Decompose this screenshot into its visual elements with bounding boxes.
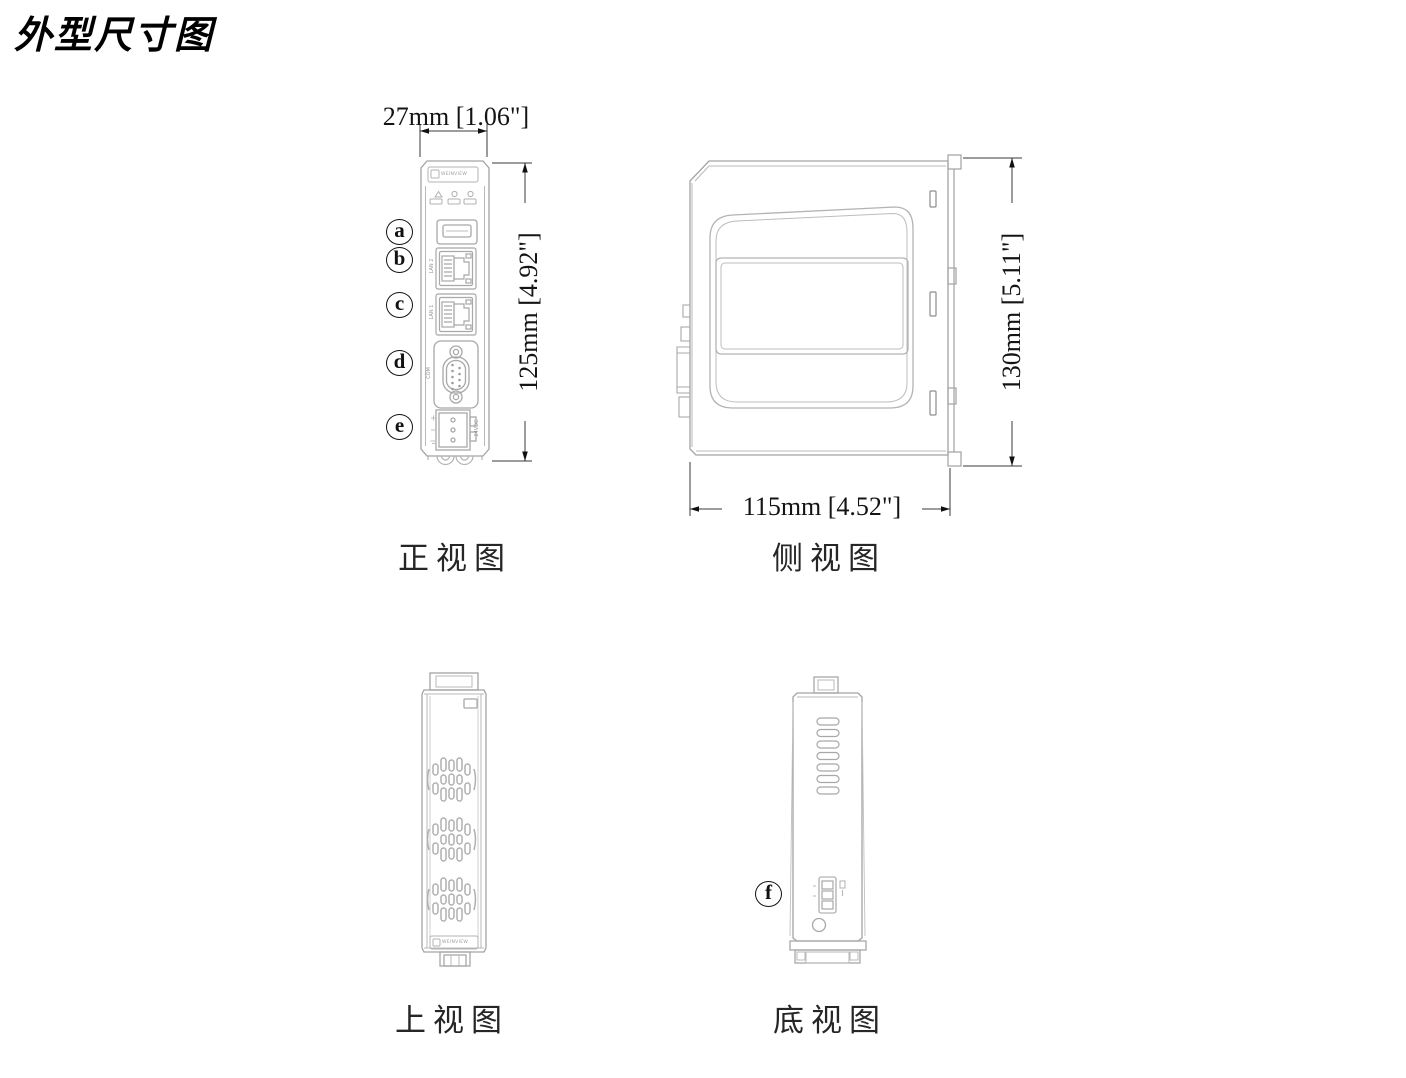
side-width-dimension: 115mm [4.52"] xyxy=(722,492,922,522)
lan1-port-icon xyxy=(436,294,476,335)
front-view-caption: 正视图 xyxy=(355,533,555,578)
bottom-top-tab xyxy=(814,677,838,693)
bottom-view-caption: 底视图 xyxy=(730,995,930,1040)
callout-c-lan1: c xyxy=(386,292,413,318)
bottom-vent-slots xyxy=(817,718,839,794)
side-view-drawing xyxy=(677,155,961,466)
callout-a-usb: a xyxy=(386,219,413,245)
front-height-dimension: 125mm [4.92"] xyxy=(513,192,545,432)
dip-switch-icon xyxy=(813,877,845,913)
callout-f-dip-switch: f xyxy=(755,881,782,907)
lan2-label: LAN 2 xyxy=(429,251,435,281)
front-width-dimension: 27mm [1.06"] xyxy=(356,102,556,132)
top-view-drawing xyxy=(422,673,486,966)
top-view-caption: 上视图 xyxy=(352,995,552,1040)
side-view-caption: 侧视图 xyxy=(729,533,929,578)
callout-e-power: e xyxy=(386,414,413,440)
power-terminal-icon xyxy=(431,410,477,450)
outline-dimension-drawing: 外型尺寸图 27mm [1.06"] 125mm [4.92"] 正视图 a b… xyxy=(0,0,1406,1078)
top-brand-logo: WEINVIEW xyxy=(442,938,476,948)
usb-port-icon xyxy=(437,220,477,244)
bottom-view-drawing xyxy=(790,677,866,963)
callout-d-com: d xyxy=(386,350,413,376)
status-led-icons xyxy=(430,191,476,204)
side-connector-profiles xyxy=(677,305,690,417)
com-label: COM xyxy=(426,358,432,388)
lan2-port-icon xyxy=(436,248,476,289)
front-brand-logo: WEINVIEW xyxy=(441,170,476,180)
drawing-canvas xyxy=(0,0,1406,1078)
lan1-label: LAN 1 xyxy=(429,297,435,327)
top-bottom-tab xyxy=(440,952,470,966)
din-rail-plate xyxy=(948,155,961,466)
side-height-dimension: 130mm [5.11"] xyxy=(996,192,1028,432)
din-clip-front xyxy=(428,456,482,465)
side-dimension-arrows xyxy=(690,158,1015,512)
callout-b-lan2: b xyxy=(386,247,413,273)
page-title: 外型尺寸图 xyxy=(14,4,214,59)
bottom-base xyxy=(790,941,866,963)
com-port-icon xyxy=(434,341,478,408)
side-dimension-lines xyxy=(690,158,1022,516)
power-label: 24VDC xyxy=(474,411,480,445)
